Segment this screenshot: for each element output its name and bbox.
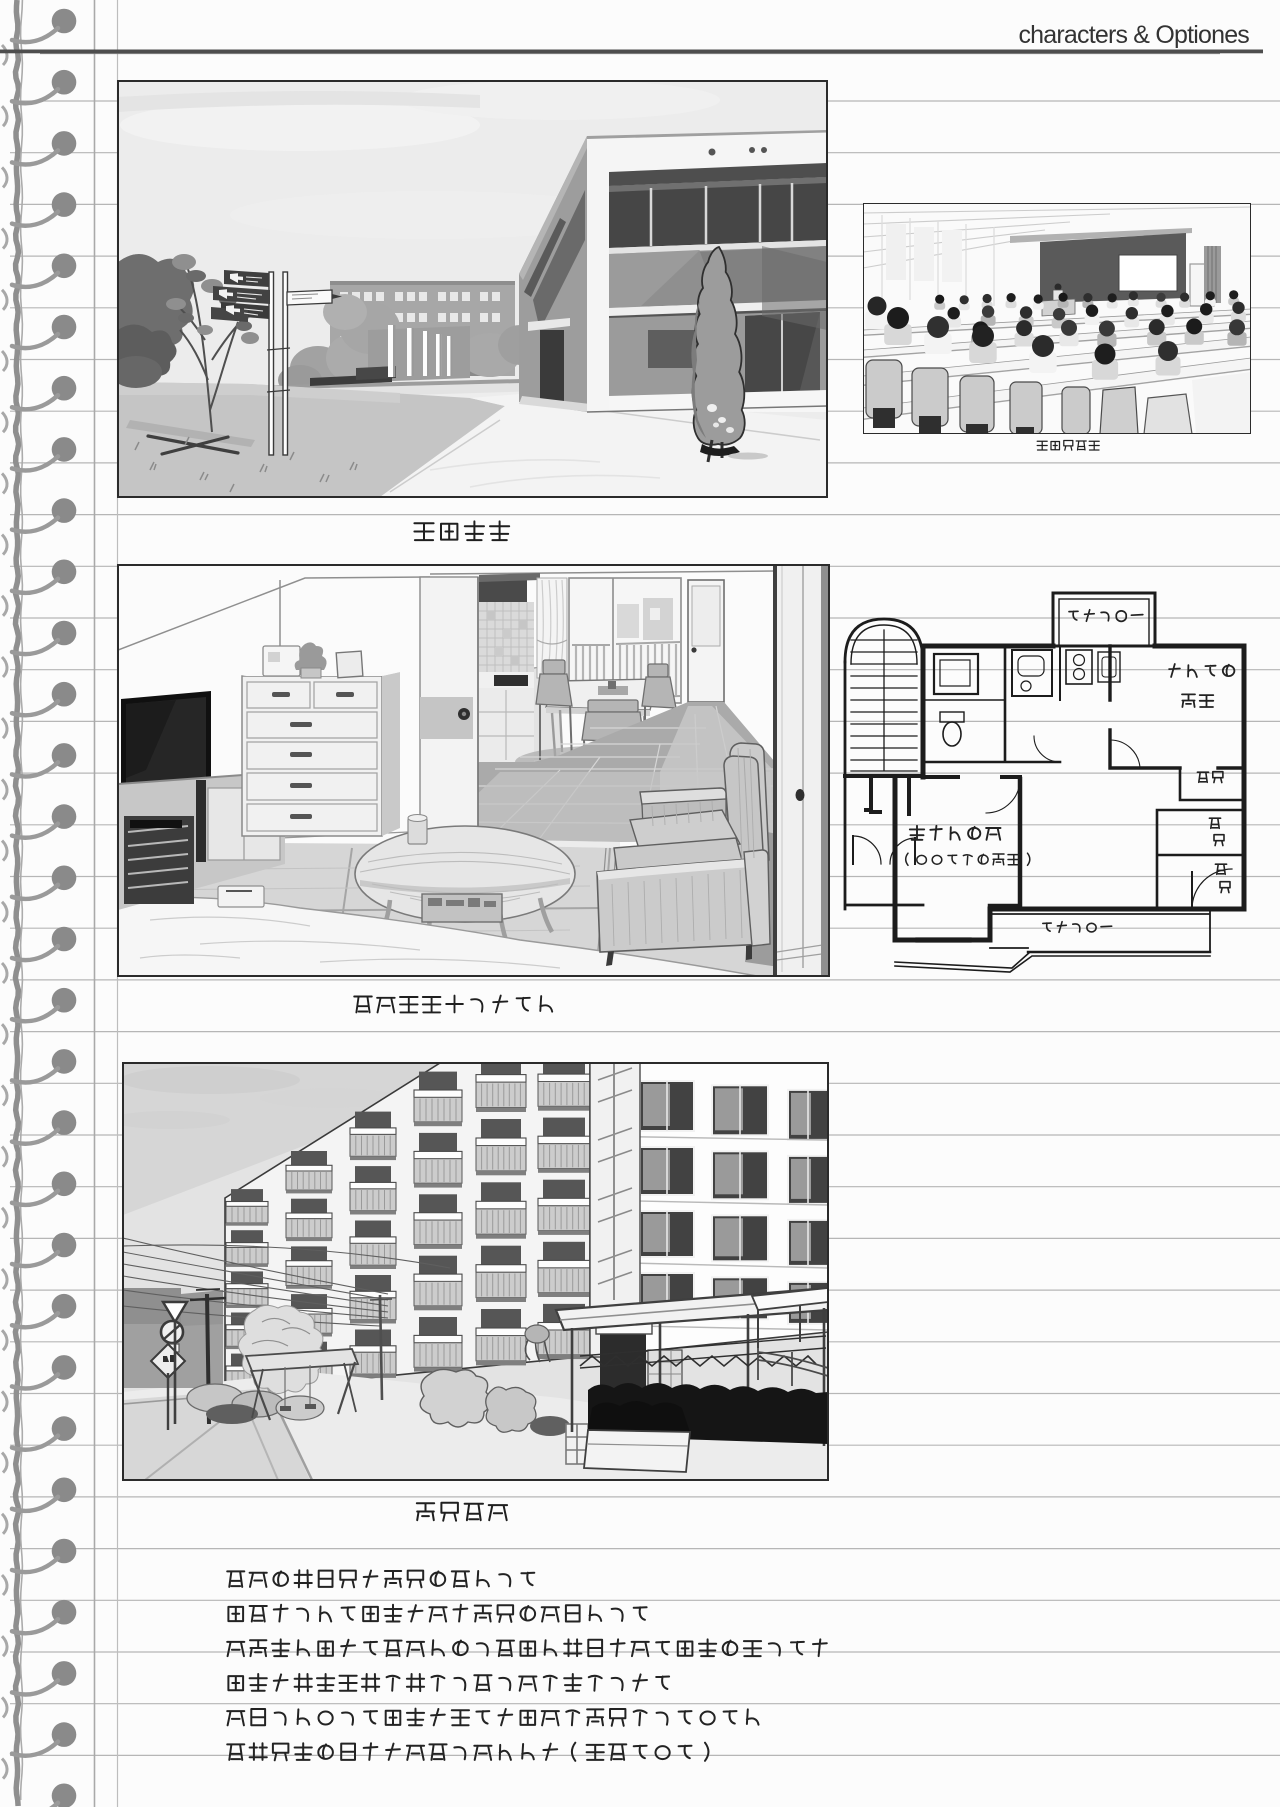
svg-text:characters & Optiones: characters & Optiones [1018, 21, 1249, 49]
